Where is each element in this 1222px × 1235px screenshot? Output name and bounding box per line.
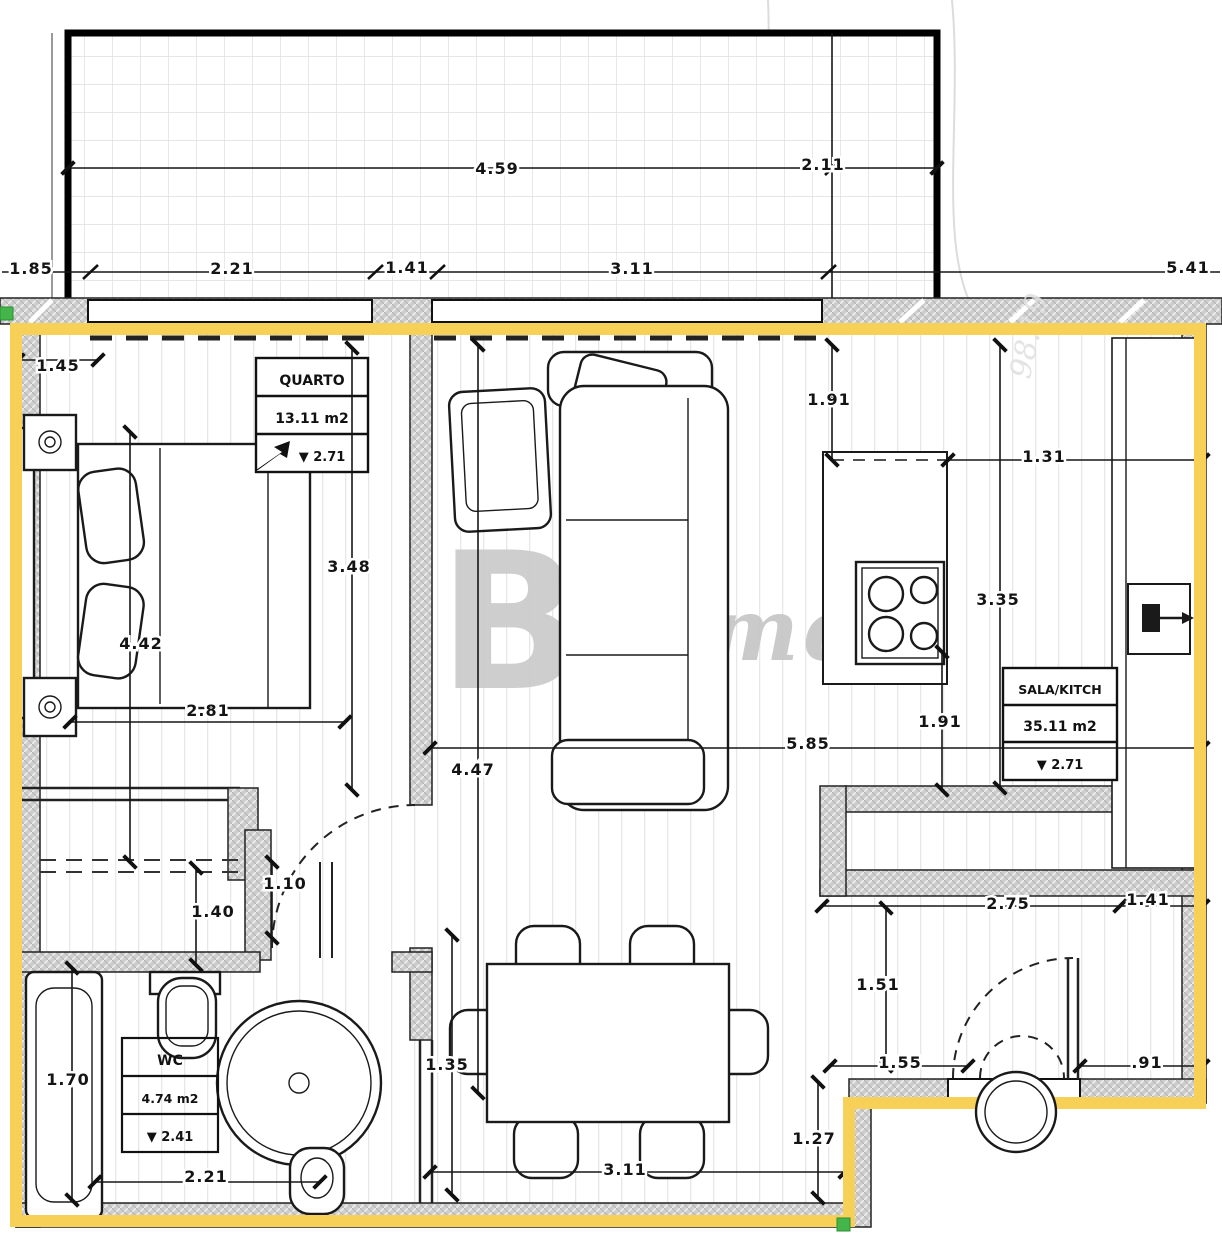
room-name: WC — [157, 1053, 183, 1069]
room-area: 4.74 m2 — [142, 1091, 199, 1106]
room-label-sala: SALA/KITCH 35.11 m2 ▼ 2.71 — [1003, 668, 1117, 780]
dim-label: 2.75 — [986, 894, 1029, 913]
dim-label: 4.47 — [451, 760, 494, 779]
burner — [869, 617, 903, 651]
wall-wc-north — [16, 952, 260, 972]
window-right — [432, 300, 822, 322]
room-level: ▼ 2.41 — [147, 1130, 194, 1145]
chair — [514, 1116, 578, 1178]
floor-plan-page: B @ home 98.19 — [0, 0, 1222, 1235]
burner — [911, 623, 937, 649]
dim-label: 1.51 — [856, 975, 899, 994]
dim-label: 1.41 — [385, 258, 428, 277]
dim-label: 4.42 — [119, 634, 162, 653]
room-level: ▼ 2.71 — [1037, 758, 1084, 773]
dim-label: 1.10 — [263, 874, 306, 893]
dim-label: 4.59 — [475, 159, 518, 178]
dining-table — [487, 964, 729, 1122]
dim-label: 1.45 — [36, 356, 79, 375]
dim-label: 1.91 — [807, 390, 850, 409]
cooktop — [856, 562, 944, 664]
round-shower — [217, 1001, 381, 1165]
dim-label: 3.35 — [976, 590, 1019, 609]
dim-label: .91 — [1131, 1053, 1162, 1072]
dim-label: 1.27 — [792, 1129, 835, 1148]
bathtub — [26, 972, 102, 1218]
dim-label: 5.85 — [786, 734, 829, 753]
nightstand-bottom — [24, 678, 76, 736]
room-name: QUARTO — [279, 373, 344, 389]
floor-plan-canvas: B @ home 98.19 — [0, 0, 1222, 1235]
grip-handle — [837, 1218, 850, 1231]
dim-label: 1.41 — [1126, 890, 1169, 909]
sofa — [548, 352, 728, 810]
room-level: ▼ 2.71 — [299, 450, 346, 465]
dim-label: 1.31 — [1022, 447, 1065, 466]
dim-label: 2.81 — [186, 701, 229, 720]
dim-label: 1.91 — [918, 712, 961, 731]
dim-label: 3.48 — [327, 557, 370, 576]
nightstand-top — [24, 415, 76, 470]
window-left — [88, 300, 372, 322]
grip-handle — [0, 307, 13, 320]
wall-bedroom-living — [410, 324, 432, 805]
pillow — [76, 582, 146, 681]
sofa-chaise — [552, 740, 704, 804]
dim-label: 3.11 — [610, 259, 653, 278]
chair — [640, 1116, 704, 1178]
appliance-icon — [1142, 604, 1160, 632]
dim-label: 5.41 — [1166, 258, 1209, 277]
dim-label: 2.11 — [801, 155, 844, 174]
pillow — [76, 466, 146, 565]
burner — [911, 577, 937, 603]
room-area: 13.11 m2 — [275, 411, 349, 427]
dim-label: 2.21 — [210, 259, 253, 278]
dim-label: 1.55 — [878, 1053, 921, 1072]
dim-label: 2.21 — [184, 1167, 227, 1186]
dim-label: 1.35 — [425, 1055, 468, 1074]
round-table — [976, 1072, 1056, 1152]
dim-label: 1.85 — [9, 259, 52, 278]
dim-label: 1.70 — [46, 1070, 89, 1089]
burner — [869, 577, 903, 611]
room-name: SALA/KITCH — [1018, 682, 1101, 697]
armchair — [448, 388, 551, 533]
dim-label: 3.11 — [603, 1160, 646, 1179]
room-area: 35.11 m2 — [1023, 719, 1097, 735]
dim-label: 1.40 — [191, 902, 234, 921]
